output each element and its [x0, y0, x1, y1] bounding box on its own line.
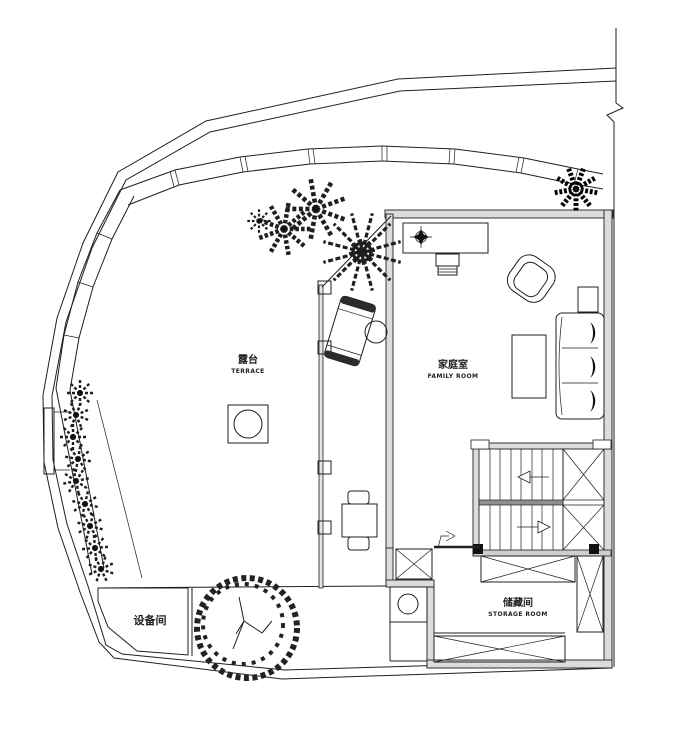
equipment-room-label-zh: 设备间: [134, 613, 167, 627]
stair-mid-rail: [479, 500, 563, 505]
desk-chair: [436, 254, 459, 275]
shrub-row: [53, 379, 119, 588]
crossed-storage-box: [481, 556, 575, 582]
armchair: [502, 250, 560, 308]
boundary-break-mark: [607, 103, 623, 122]
wall-top: [385, 210, 613, 218]
building-walls: [385, 210, 613, 668]
door-jamb-left: [471, 440, 489, 449]
shrub-plant: [62, 443, 94, 475]
entry-nook: [390, 531, 480, 661]
wall-stair-top: [473, 443, 611, 449]
newel-post: [589, 544, 599, 554]
water-heater: [390, 587, 427, 622]
fire-pit: [228, 405, 268, 443]
stairs-down-arrow: [517, 521, 550, 533]
terrace-label-en: TERRACE: [231, 368, 264, 375]
side-table: [578, 287, 598, 312]
storage-room-label-zh: 储藏间: [502, 596, 533, 609]
chaise-lounge: [323, 295, 376, 367]
stairs: [473, 449, 611, 556]
stairs-up-arrow: [518, 471, 549, 483]
desk: [403, 223, 488, 253]
wall-bottom: [427, 660, 612, 668]
newel-post: [473, 544, 483, 554]
storage-room-label-en: STORAGE ROOM: [488, 611, 547, 618]
sofa: [556, 313, 604, 419]
palm-tree: [278, 170, 356, 248]
dining-table: [342, 504, 377, 537]
outdoor-dining-set: [342, 491, 377, 550]
boundary-right-edge: [614, 28, 616, 667]
crossed-storage-box: [577, 556, 603, 632]
wall-left: [386, 214, 393, 548]
family-room-label-en: FAMILY ROOM: [428, 373, 479, 380]
coffee-table: [512, 335, 546, 398]
shrub-plant: [66, 485, 105, 524]
family-room-label-zh: 家庭室: [438, 358, 468, 371]
crossed-shaft-box: [396, 549, 432, 579]
shrub-plant: [75, 528, 114, 567]
stair-treads: [490, 449, 553, 550]
floor-plan-drawing: 露台 TERRACE 家庭室 FAMILY ROOM 储藏间 STORAGE R…: [0, 0, 676, 732]
floor-plan-canvas: 露台 TERRACE 家庭室 FAMILY ROOM 储藏间 STORAGE R…: [0, 0, 676, 732]
wall-right: [604, 210, 612, 668]
wall-entry-h: [386, 580, 434, 587]
stair-landing-braces: [563, 449, 604, 550]
dining-chair: [348, 491, 369, 504]
door-jamb-right: [593, 440, 611, 449]
terrace-label-zh: 露台: [238, 353, 258, 366]
wall-stair-left: [473, 443, 479, 556]
deck-edge: [319, 285, 323, 588]
corner-plant: [552, 164, 602, 214]
shrub-plant: [53, 417, 93, 457]
storage-room-fittings: [434, 556, 603, 662]
dining-chair: [348, 537, 369, 550]
crossed-storage-box: [434, 633, 565, 662]
wall-entry-v2: [427, 587, 434, 668]
tree-trunk: [233, 597, 272, 649]
light-fixture-symbol: [410, 226, 432, 248]
